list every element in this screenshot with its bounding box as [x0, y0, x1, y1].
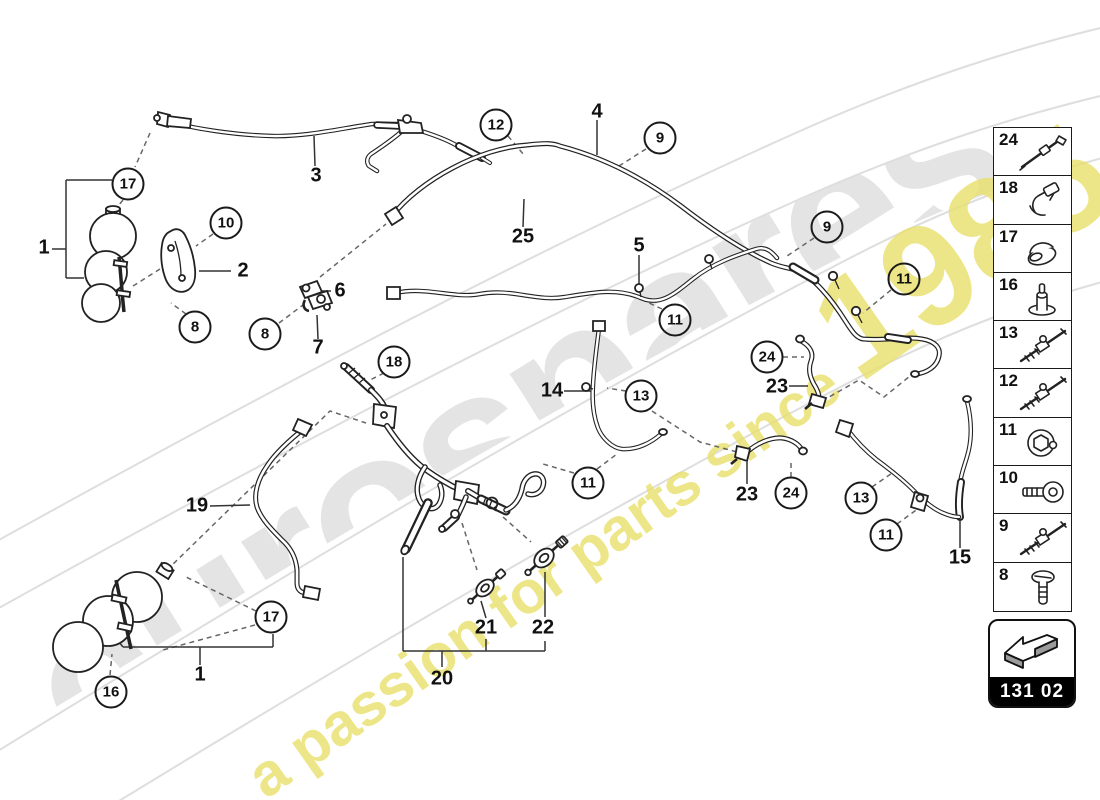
callout-circle-16-16[interactable]: 16: [95, 676, 128, 709]
callout-circle-13-10[interactable]: 13: [625, 380, 658, 413]
part-vacuum-line-5-drawing: [387, 248, 777, 300]
round-nut-icon: [1015, 420, 1071, 464]
part-branched-hose-assembly-20-drawing: [341, 363, 544, 556]
legend-row-17[interactable]: 17: [994, 225, 1071, 273]
part-vacuum-line-19-drawing: [256, 419, 320, 600]
diagram-arrow-icon: [997, 625, 1067, 677]
callout-circle-17-0[interactable]: 17: [112, 168, 145, 201]
parts-diagram-stage: eurospares a passion for parts since 198…: [0, 0, 1100, 800]
stud-clip-icon: [1015, 371, 1071, 415]
legend-row-10[interactable]: 10: [994, 466, 1071, 514]
part-group-code-box: 131 02: [988, 619, 1076, 708]
callout-circle-11-15[interactable]: 11: [870, 519, 903, 552]
part-check-valve-21-drawing: [464, 566, 508, 608]
callout-circle-10-1[interactable]: 10: [210, 207, 243, 240]
part-bracket-2-drawing: [161, 229, 195, 292]
callout-circle-24-13[interactable]: 24: [775, 477, 808, 510]
callout-circle-17-17[interactable]: 17: [255, 601, 288, 634]
part-hose-23-lower-drawing: [731, 438, 807, 464]
callout-circle-13-14[interactable]: 13: [845, 482, 878, 515]
legend-row-number: 8: [999, 565, 1008, 585]
part-clamp-6-7-drawing: [300, 281, 332, 311]
stud-clip-icon: [1015, 323, 1071, 367]
legend-row-13[interactable]: 13: [994, 321, 1071, 369]
part-hose-23-upper-drawing: [796, 336, 826, 410]
legend-row-number: 9: [999, 516, 1008, 536]
callout-circle-9-5[interactable]: 9: [644, 122, 677, 155]
tie-strap-icon: [1015, 130, 1071, 174]
callout-circle-24-12[interactable]: 24: [751, 341, 784, 374]
pan-screw-icon: [1015, 565, 1071, 609]
part-vacuum-line-4-drawing: [385, 144, 939, 377]
callout-circle-8-2[interactable]: 8: [179, 311, 212, 344]
cap-nut-icon: [1015, 227, 1071, 271]
callout-circle-11-8[interactable]: 11: [888, 263, 921, 296]
leader-lines: [52, 120, 960, 667]
legend-panel: 241817161312111098: [993, 127, 1072, 612]
callout-circle-11-7[interactable]: 11: [659, 304, 692, 337]
bolt-washer-icon: [1015, 468, 1071, 512]
callout-circle-9-6[interactable]: 9: [811, 211, 844, 244]
clamp-clip-icon: [1015, 178, 1071, 222]
legend-row-16[interactable]: 16: [994, 273, 1071, 321]
callout-circle-8-3[interactable]: 8: [249, 318, 282, 351]
part-vacuum-line-14-drawing: [582, 321, 667, 449]
legend-row-11[interactable]: 11: [994, 418, 1071, 466]
legend-row-18[interactable]: 18: [994, 176, 1071, 224]
grommet-icon: [1015, 275, 1071, 319]
callout-circle-18-9[interactable]: 18: [378, 346, 411, 379]
part-vacuum-line-3-drawing: [154, 112, 490, 171]
callout-circle-11-11[interactable]: 11: [572, 467, 605, 500]
diagram-linework: [0, 0, 1100, 800]
callout-circle-12-4[interactable]: 12: [480, 109, 513, 142]
part-vacuum-reservoir-1-lower-drawing: [53, 561, 174, 672]
part-group-code: 131 02: [990, 677, 1074, 706]
legend-row-24[interactable]: 24: [994, 128, 1071, 176]
part-vacuum-reservoir-1-upper-drawing: [82, 206, 136, 322]
legend-row-8[interactable]: 8: [994, 563, 1071, 611]
legend-row-9[interactable]: 9: [994, 514, 1071, 562]
legend-row-12[interactable]: 12: [994, 369, 1071, 417]
stud-clip-icon: [1015, 516, 1071, 560]
